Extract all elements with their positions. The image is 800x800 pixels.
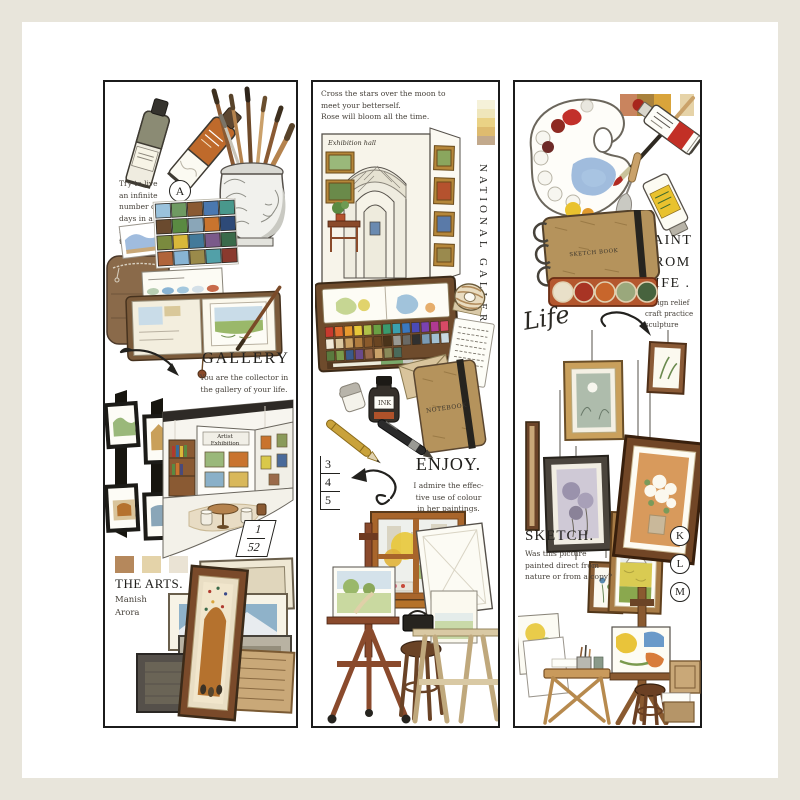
strip-swatch-3 (477, 118, 495, 127)
gallery-room-interior-illustration (163, 400, 293, 558)
washi-tape-illustration (452, 281, 487, 316)
hall-label: Exhibition hall (327, 139, 376, 147)
palette-illustration (531, 99, 631, 220)
panel-gallery: Try to live an infinite number of days i… (103, 80, 298, 728)
product-sheet: Try to live an infinite number of days i… (0, 0, 800, 800)
number-4: 4 (321, 474, 340, 492)
eraser-illustration (338, 382, 366, 413)
strip-swatch-1 (477, 100, 495, 109)
strip-swatch-4 (477, 127, 495, 136)
arrow-doodle (345, 464, 399, 512)
sketch-title: SKETCH. (525, 528, 594, 545)
ink-label: INK (378, 399, 391, 407)
gallery-title: GALLERY (199, 350, 293, 368)
panel-paint-from-life: PAINT FROM LIFE . design relief craft pr… (513, 80, 702, 728)
arrow-doodle (117, 346, 183, 382)
studio-scene-illustration (518, 587, 701, 725)
panel-national-gallery: Cross the stars over the moon to meet yo… (311, 80, 500, 728)
letter-badge-k: K (670, 526, 690, 546)
studio-window-illustration (315, 507, 498, 725)
sketch-caption: Was this picture painted direct from nat… (525, 548, 621, 583)
watercolor-grid-illustration (153, 198, 238, 268)
brush-cup-illustration (577, 645, 591, 671)
ink-bottle-illustration: INK (369, 376, 399, 422)
notebook-illustration: NOTEBOOK (413, 357, 487, 455)
strip-swatch-2 (477, 109, 495, 118)
fraction-numerator: 1 (247, 522, 269, 539)
letter-badge-l: L (670, 554, 690, 574)
olive-paint-tube-illustration (125, 97, 174, 189)
exhibition-sign: Artist Exhibition (203, 434, 247, 448)
fraction-denominator: 52 (243, 539, 265, 555)
swatch-strip (477, 100, 495, 145)
middle-quote: Cross the stars over the moon to meet yo… (321, 88, 461, 123)
hallway-illustration: Exhibition hall (318, 126, 462, 292)
frames-stack-illustration (129, 556, 297, 724)
strip-swatch-5 (477, 136, 495, 145)
number-list: 3 4 5 (320, 456, 340, 510)
tall-frame-illustration (179, 566, 248, 720)
enjoy-title: ENJOY. (401, 454, 496, 475)
number-3: 3 (321, 456, 340, 474)
sketchbook-illustration: SKETCH BOOK (525, 210, 675, 312)
